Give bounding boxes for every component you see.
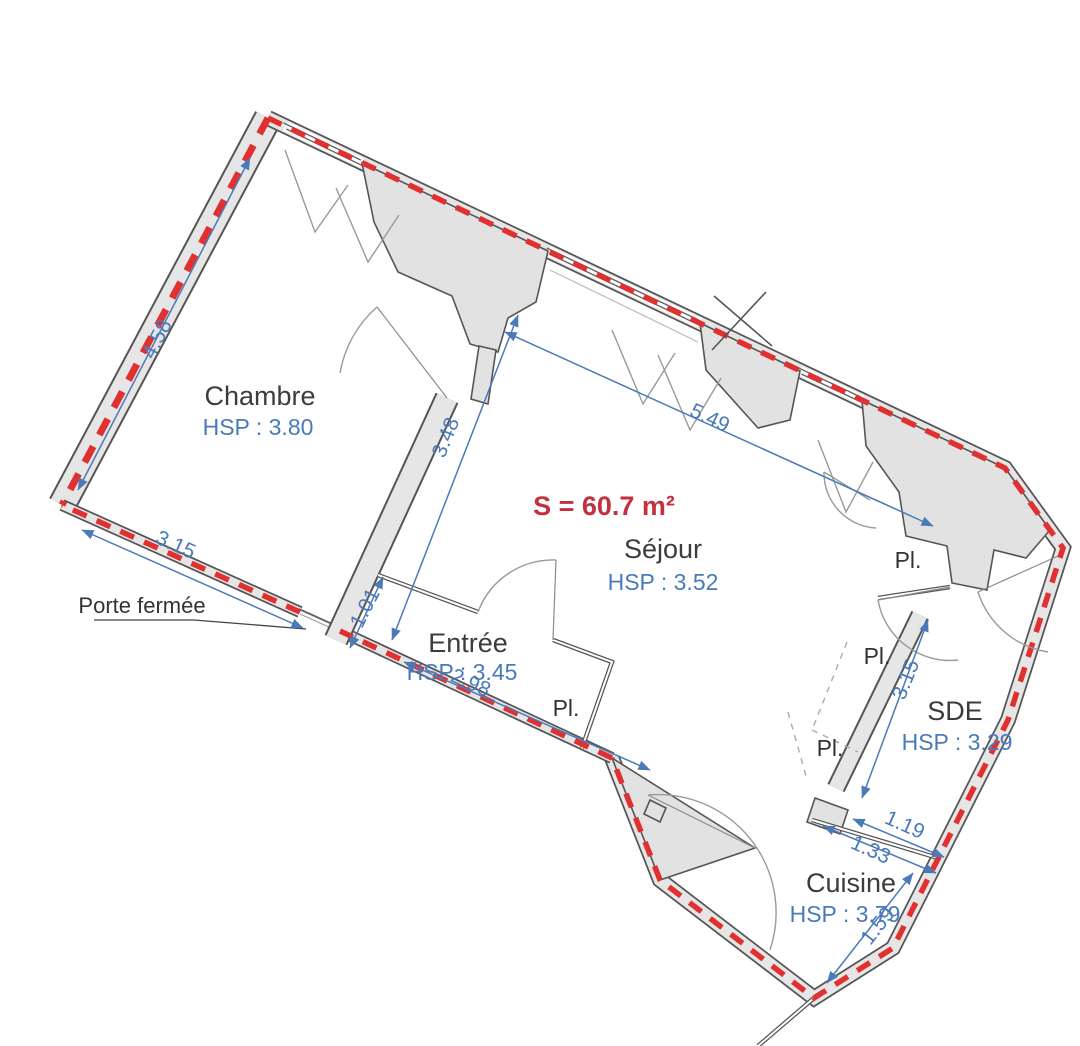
interior-walls xyxy=(336,270,950,1046)
area-label: S = 60.7 m² xyxy=(533,491,675,521)
closed-door-leader xyxy=(94,620,306,629)
room-label-cuisine: Cuisine xyxy=(806,868,896,898)
window-v-3 xyxy=(612,330,675,404)
closet-label-sejour-2: Pl. xyxy=(817,735,844,761)
dim-1-19: 1.19 xyxy=(881,806,928,844)
closet-label-sejour-1: Pl. xyxy=(864,643,891,669)
sejour-door-arc xyxy=(478,560,556,612)
room-label-sde: SDE xyxy=(927,696,983,726)
room-label-chambre: Chambre xyxy=(204,381,315,411)
room-hsp-chambre: HSP : 3.80 xyxy=(203,414,314,440)
floor-plan: Chambre HSP : 3.80 Séjour HSP : 3.52 Ent… xyxy=(0,0,1080,1046)
window-v-5 xyxy=(818,440,873,512)
closet-label-entree: Pl. xyxy=(553,695,580,721)
pier-top-right xyxy=(862,400,1050,590)
sde-door-leaf xyxy=(878,587,950,600)
room-hsp-sde: HSP : 3.29 xyxy=(902,729,1013,755)
perimeter-left xyxy=(62,118,268,505)
closet-label-top-right: Pl. xyxy=(895,547,922,573)
room-label-entree: Entrée xyxy=(428,628,508,658)
room-label-sejour: Séjour xyxy=(624,534,702,564)
dim-1-33: 1.33 xyxy=(847,831,894,869)
chambre-door-arc xyxy=(340,307,377,373)
closet-door-leaf xyxy=(824,472,870,500)
wall-piers xyxy=(362,163,1050,880)
chambre-door-leaf xyxy=(377,307,447,398)
floor-plan-drawing: Chambre HSP : 3.80 Séjour HSP : 3.52 Ent… xyxy=(0,0,1080,1046)
sejour-door-leaf xyxy=(553,560,556,640)
wall-chambre-entree xyxy=(336,398,447,640)
window-v-1 xyxy=(285,150,348,232)
room-hsp-sejour: HSP : 3.52 xyxy=(608,569,719,595)
closed-door-label: Porte fermée xyxy=(78,593,205,618)
pier-stub xyxy=(471,346,496,404)
